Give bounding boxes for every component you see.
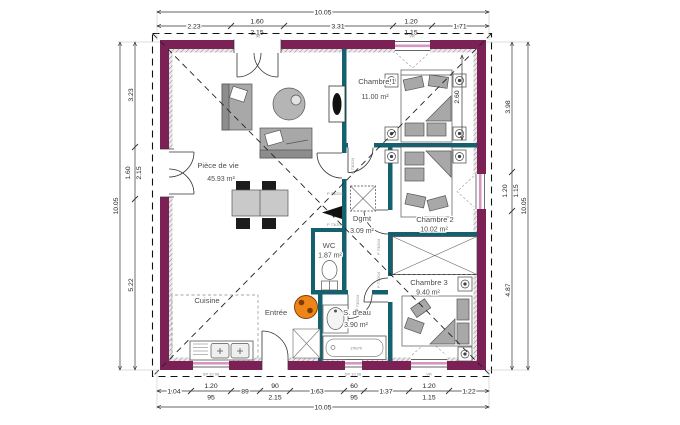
nightstand bbox=[458, 277, 472, 291]
dim-left-2b: 2.15 bbox=[136, 166, 143, 179]
area-sdeau: 3.90 m² bbox=[344, 322, 368, 329]
window-ref: SP 10 08 bbox=[203, 372, 220, 377]
dim-left-2a: 1.60 bbox=[125, 166, 132, 179]
dining-table bbox=[232, 181, 288, 229]
area-chambre1: 11.00 m² bbox=[361, 94, 389, 101]
dim-bottom-8a: 1.20 bbox=[422, 383, 435, 390]
area-wc: 1.87 m² bbox=[318, 253, 342, 260]
shutter-ref: VR bbox=[426, 372, 432, 377]
dimension-right: 3.98 1.20 1.15 4.87 10.05 bbox=[486, 42, 530, 370]
dim-top-2a: 1.60 bbox=[250, 19, 263, 26]
furniture-piece-de-vie bbox=[222, 84, 345, 229]
round-table bbox=[273, 88, 305, 120]
dim-top-5: 1.71 bbox=[453, 24, 466, 31]
dim-bottom-4b: 2.15 bbox=[268, 395, 281, 402]
dim-bottom-6a: 60 bbox=[350, 383, 358, 390]
bathtub-size-label: 170x70 bbox=[350, 347, 362, 351]
closet-chambre2-3 bbox=[393, 237, 478, 275]
pellet-stove bbox=[329, 86, 345, 122]
closet-entree bbox=[293, 329, 320, 358]
dim-right-2a: 1.20 bbox=[502, 184, 509, 197]
window-chambre2 bbox=[457, 174, 487, 209]
label-cuisine: Cuisine bbox=[194, 296, 219, 305]
dim-top-4a: 1.20 bbox=[404, 19, 417, 26]
label-chambre1: Chambre 1 bbox=[358, 77, 396, 86]
label-chambre2: Chambre 2 bbox=[416, 215, 454, 224]
dim-right-overall: 10.05 bbox=[521, 197, 528, 214]
sofa-horizontal bbox=[260, 128, 312, 158]
entrance-door-bottom bbox=[262, 331, 288, 371]
dim-left-1: 3.23 bbox=[128, 88, 135, 101]
dim-right-3: 4.87 bbox=[505, 283, 512, 296]
dim-right-2b: 1.15 bbox=[513, 184, 520, 197]
nightstand bbox=[385, 150, 398, 163]
dim-bottom-7: 1.37 bbox=[379, 389, 392, 396]
dim-top-4b: 1.15 bbox=[404, 30, 417, 37]
dim-bottom-8b: 1.15 bbox=[422, 395, 435, 402]
door-ref: P 73/204 bbox=[376, 271, 381, 288]
dim-left-overall: 10.05 bbox=[113, 197, 120, 214]
dim-right-1: 3.98 bbox=[505, 100, 512, 113]
door-piece-de-vie-corridor bbox=[317, 153, 342, 178]
dim-bottom-4a: 90 bbox=[271, 383, 279, 390]
door-ref: P 73/204 bbox=[327, 222, 344, 227]
dim-bottom-5: 1.63 bbox=[310, 389, 323, 396]
area-chambre2: 10.02 m² bbox=[420, 227, 448, 234]
label-dgmt: Dgmt bbox=[353, 214, 372, 223]
door-ref: P 73/204 bbox=[350, 157, 355, 174]
area-chambre3: 9.40 m² bbox=[416, 290, 440, 297]
door-ref: P 73/204 bbox=[376, 238, 381, 255]
bathtub: 170x70 bbox=[323, 336, 386, 360]
dim-top-2b: 2.15 bbox=[250, 30, 263, 37]
kitchen-sink-unit bbox=[190, 341, 253, 360]
area-piece-de-vie: 45.93 m² bbox=[207, 176, 235, 183]
label-entree: Entrée bbox=[265, 308, 287, 317]
nightstand bbox=[453, 74, 466, 87]
french-door-left bbox=[159, 149, 194, 197]
floor-plan-svg: 170x70 Pièce de vie 45.93 m² Chambre 1 1… bbox=[0, 0, 680, 425]
nightstand bbox=[385, 127, 398, 140]
sofa-vertical bbox=[222, 84, 252, 130]
dim-chambre1-depth: 2.60 bbox=[454, 90, 461, 103]
entry-double-door-top bbox=[234, 39, 281, 78]
closet-dgmt bbox=[351, 186, 376, 211]
window-ref: SP 10 08 bbox=[345, 372, 362, 377]
label-chambre3: Chambre 3 bbox=[410, 278, 448, 287]
furniture-chambre2 bbox=[401, 147, 452, 217]
dim-bottom-2a: 1.20 bbox=[204, 383, 217, 390]
dim-bottom-1: 1.04 bbox=[167, 389, 180, 396]
label-wc: WC bbox=[323, 241, 336, 250]
dim-left-3: 5.22 bbox=[128, 278, 135, 291]
window-chambre1 bbox=[395, 39, 430, 69]
dim-top-1: 2.23 bbox=[187, 24, 200, 31]
floor-plan: 170x70 Pièce de vie 45.93 m² Chambre 1 1… bbox=[0, 0, 680, 425]
nightstand bbox=[453, 127, 466, 140]
dim-top-overall: 10.05 bbox=[314, 10, 331, 17]
label-piece-de-vie: Pièce de vie bbox=[197, 161, 238, 170]
dim-bottom-2b: 95 bbox=[207, 395, 215, 402]
dimension-top: 10.05 2.23 1.60 2.15 3.31 1.20 1.15 1.71 bbox=[157, 10, 489, 41]
dim-bottom-9: 1.22 bbox=[462, 389, 475, 396]
nightstand bbox=[453, 150, 466, 163]
dim-bottom-3: 89 bbox=[241, 389, 249, 396]
water-heater bbox=[295, 296, 318, 319]
toilet bbox=[322, 261, 338, 291]
dim-top-3: 3.31 bbox=[331, 24, 344, 31]
area-dgmt: 3.09 m² bbox=[350, 228, 374, 235]
door-ref: P 73/204 bbox=[355, 294, 360, 311]
dim-bottom-6b: 95 bbox=[350, 395, 358, 402]
dim-bottom-overall: 10.05 bbox=[314, 405, 331, 412]
door-ref: P 73/204 bbox=[327, 191, 344, 196]
